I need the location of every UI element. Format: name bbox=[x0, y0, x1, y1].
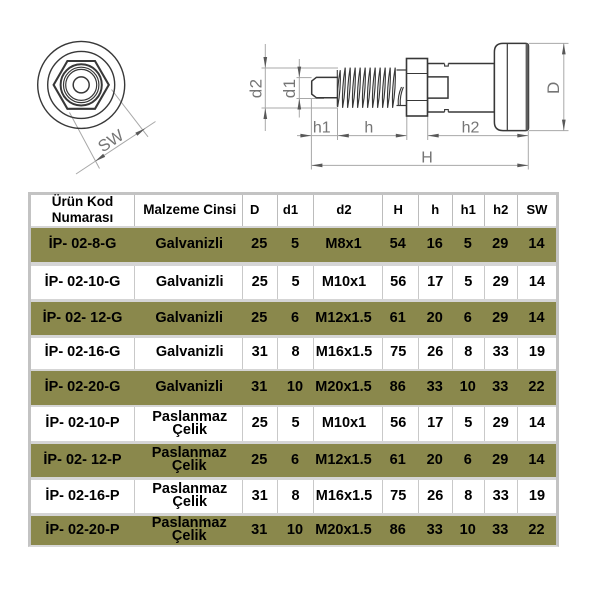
svg-text:h1: h1 bbox=[313, 119, 331, 136]
svg-text:h: h bbox=[364, 119, 373, 136]
svg-text:D: D bbox=[544, 82, 563, 94]
svg-text:H: H bbox=[421, 150, 433, 167]
svg-text:SW: SW bbox=[95, 126, 127, 156]
svg-text:d2: d2 bbox=[246, 78, 265, 98]
svg-text:h2: h2 bbox=[462, 119, 480, 136]
svg-text:d1: d1 bbox=[280, 78, 299, 98]
